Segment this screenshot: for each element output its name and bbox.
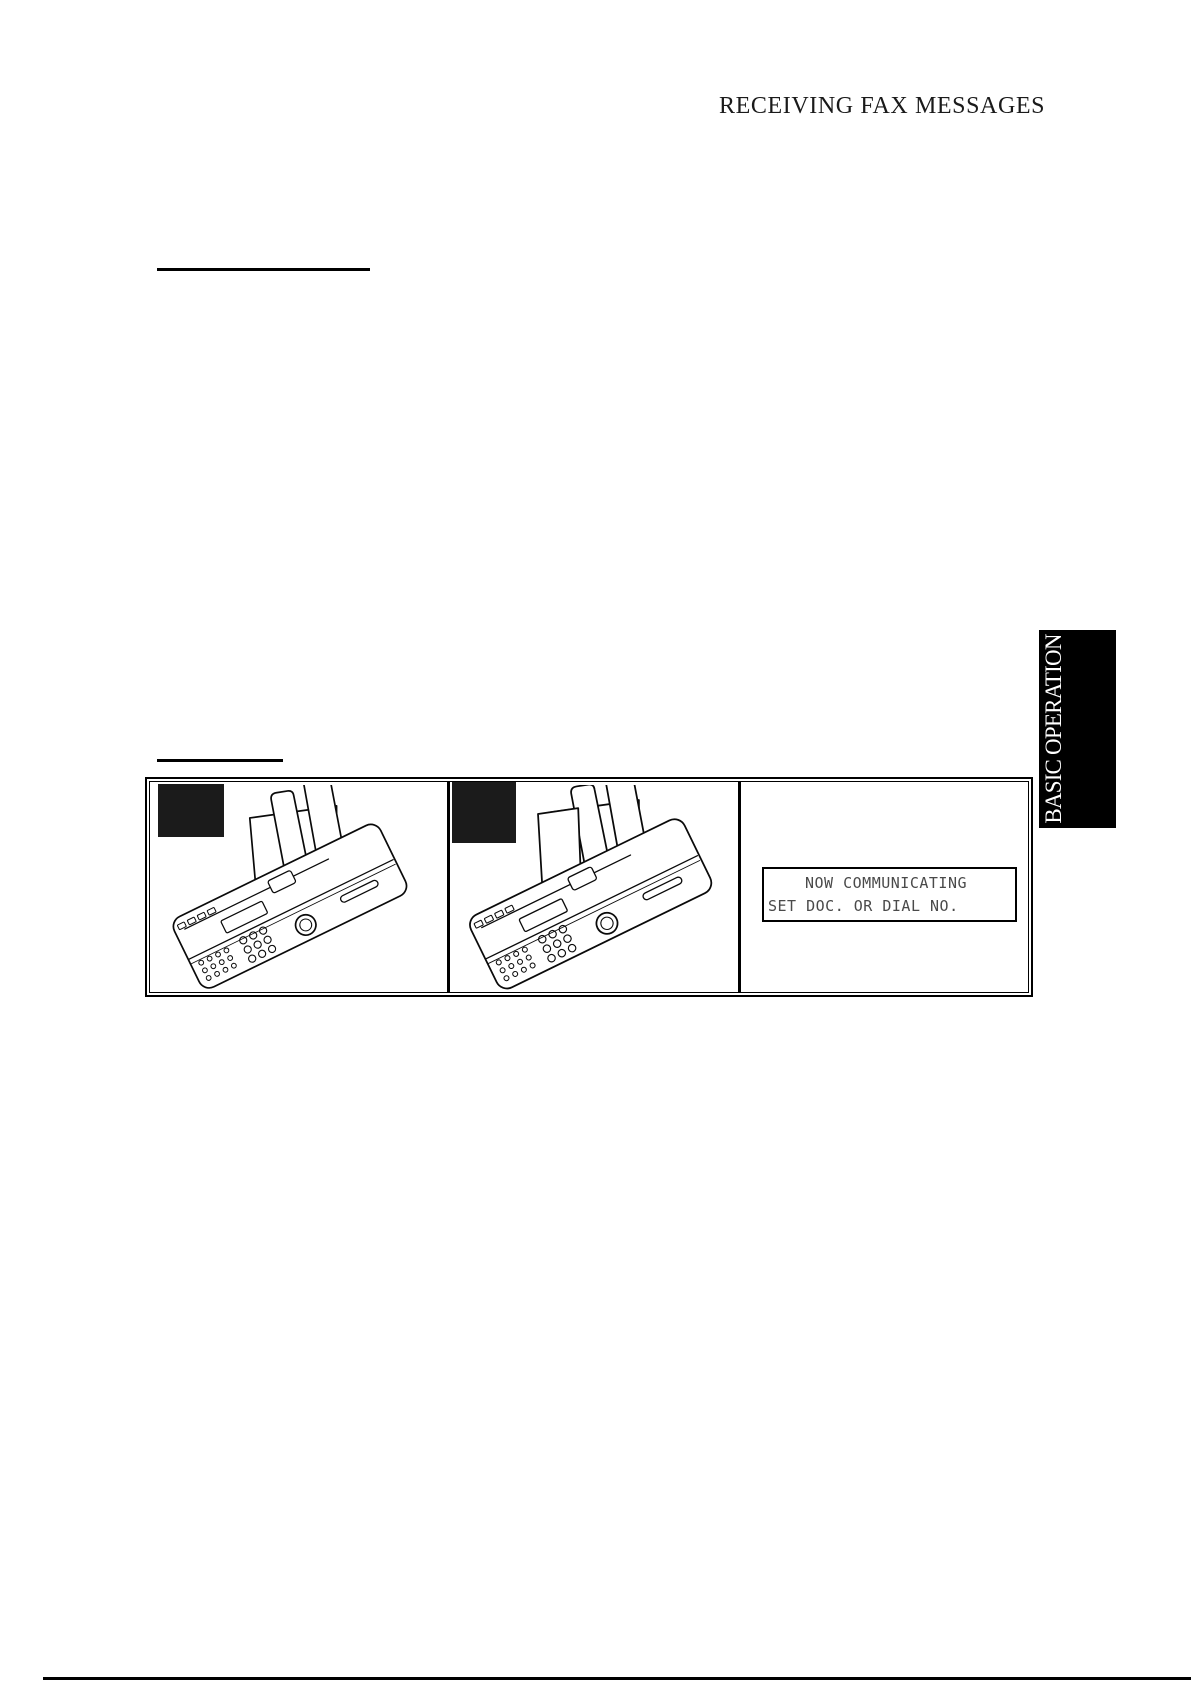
procedure-figure: NOW COMMUNICATING SET DOC. OR DIAL NO. [145,777,1033,997]
panel-divider-1 [447,782,450,992]
section-heading-rule [157,268,370,271]
panel-divider-2 [738,782,741,992]
lcd-display: NOW COMMUNICATING SET DOC. OR DIAL NO. [762,867,1017,922]
step-number-box-1 [158,784,224,837]
basic-operation-tab-label: BASIC OPERATION [1040,630,1068,828]
lcd-line-2: SET DOC. OR DIAL NO. [764,895,1015,918]
subsection-heading-rule [157,759,283,762]
page-bottom-rule [43,1677,1191,1680]
lcd-line-1: NOW COMMUNICATING [764,869,1015,895]
step-number-box-2 [452,782,516,843]
page-title: RECEIVING FAX MESSAGES [719,93,1045,119]
basic-operation-tab: BASIC OPERATION [1039,630,1116,828]
manual-page: RECEIVING FAX MESSAGES [0,0,1191,1685]
